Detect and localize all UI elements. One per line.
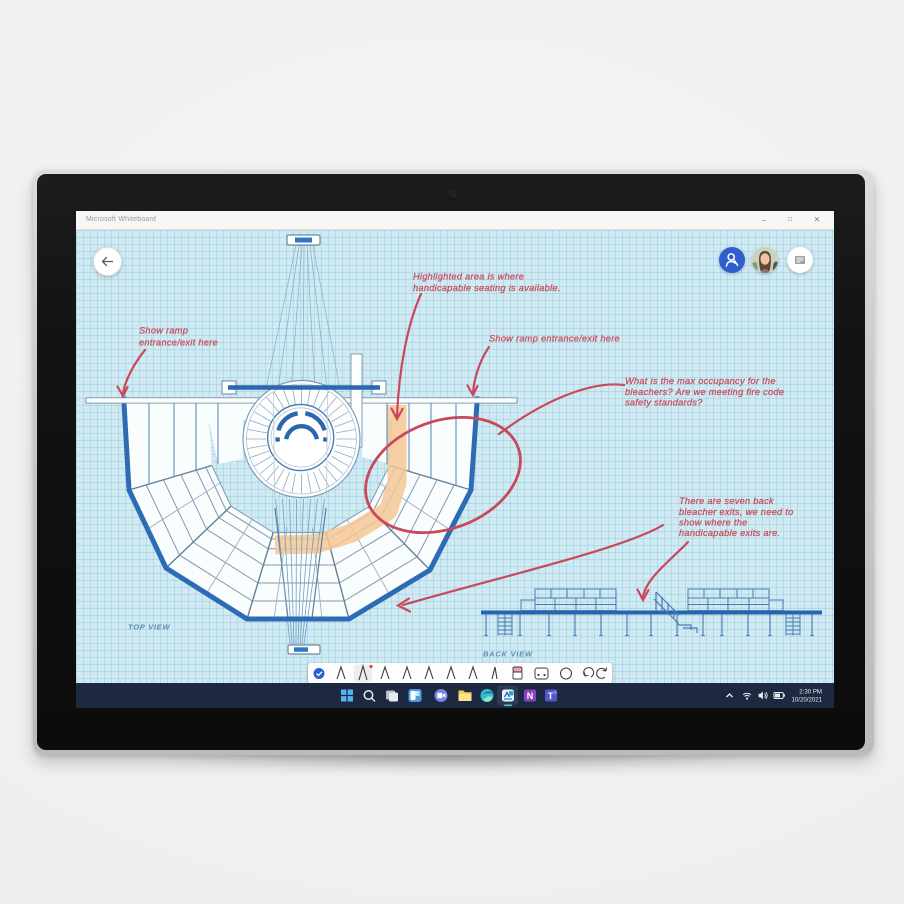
svg-text:10/20/2021: 10/20/2021 <box>792 697 823 704</box>
svg-text:show where the: show where the <box>679 518 748 528</box>
svg-text:handicapable exits are.: handicapable exits are. <box>679 528 780 538</box>
svg-text:TOP VIEW: TOP VIEW <box>128 623 170 632</box>
svg-text:There are seven back: There are seven back <box>679 496 774 506</box>
svg-text:Show ramp: Show ramp <box>139 326 188 336</box>
svg-text:2:30 PM: 2:30 PM <box>799 689 822 696</box>
svg-text:safety standards?: safety standards? <box>625 398 703 408</box>
svg-text:Show ramp entrance/exit here: Show ramp entrance/exit here <box>489 334 620 344</box>
svg-text:bleachers? Are we meeting fire: bleachers? Are we meeting fire code <box>625 387 784 397</box>
svg-text:BACK VIEW: BACK VIEW <box>483 650 533 659</box>
svg-text:N: N <box>527 691 534 701</box>
svg-text:Highlighted area is where: Highlighted area is where <box>413 272 524 282</box>
svg-text:handicapable seating is availa: handicapable seating is available. <box>413 283 561 293</box>
svg-text:entrance/exit here: entrance/exit here <box>139 338 218 348</box>
svg-text:What is the max occupancy for: What is the max occupancy for the <box>625 376 776 386</box>
svg-text:bleacher exits, we need to: bleacher exits, we need to <box>679 507 794 517</box>
